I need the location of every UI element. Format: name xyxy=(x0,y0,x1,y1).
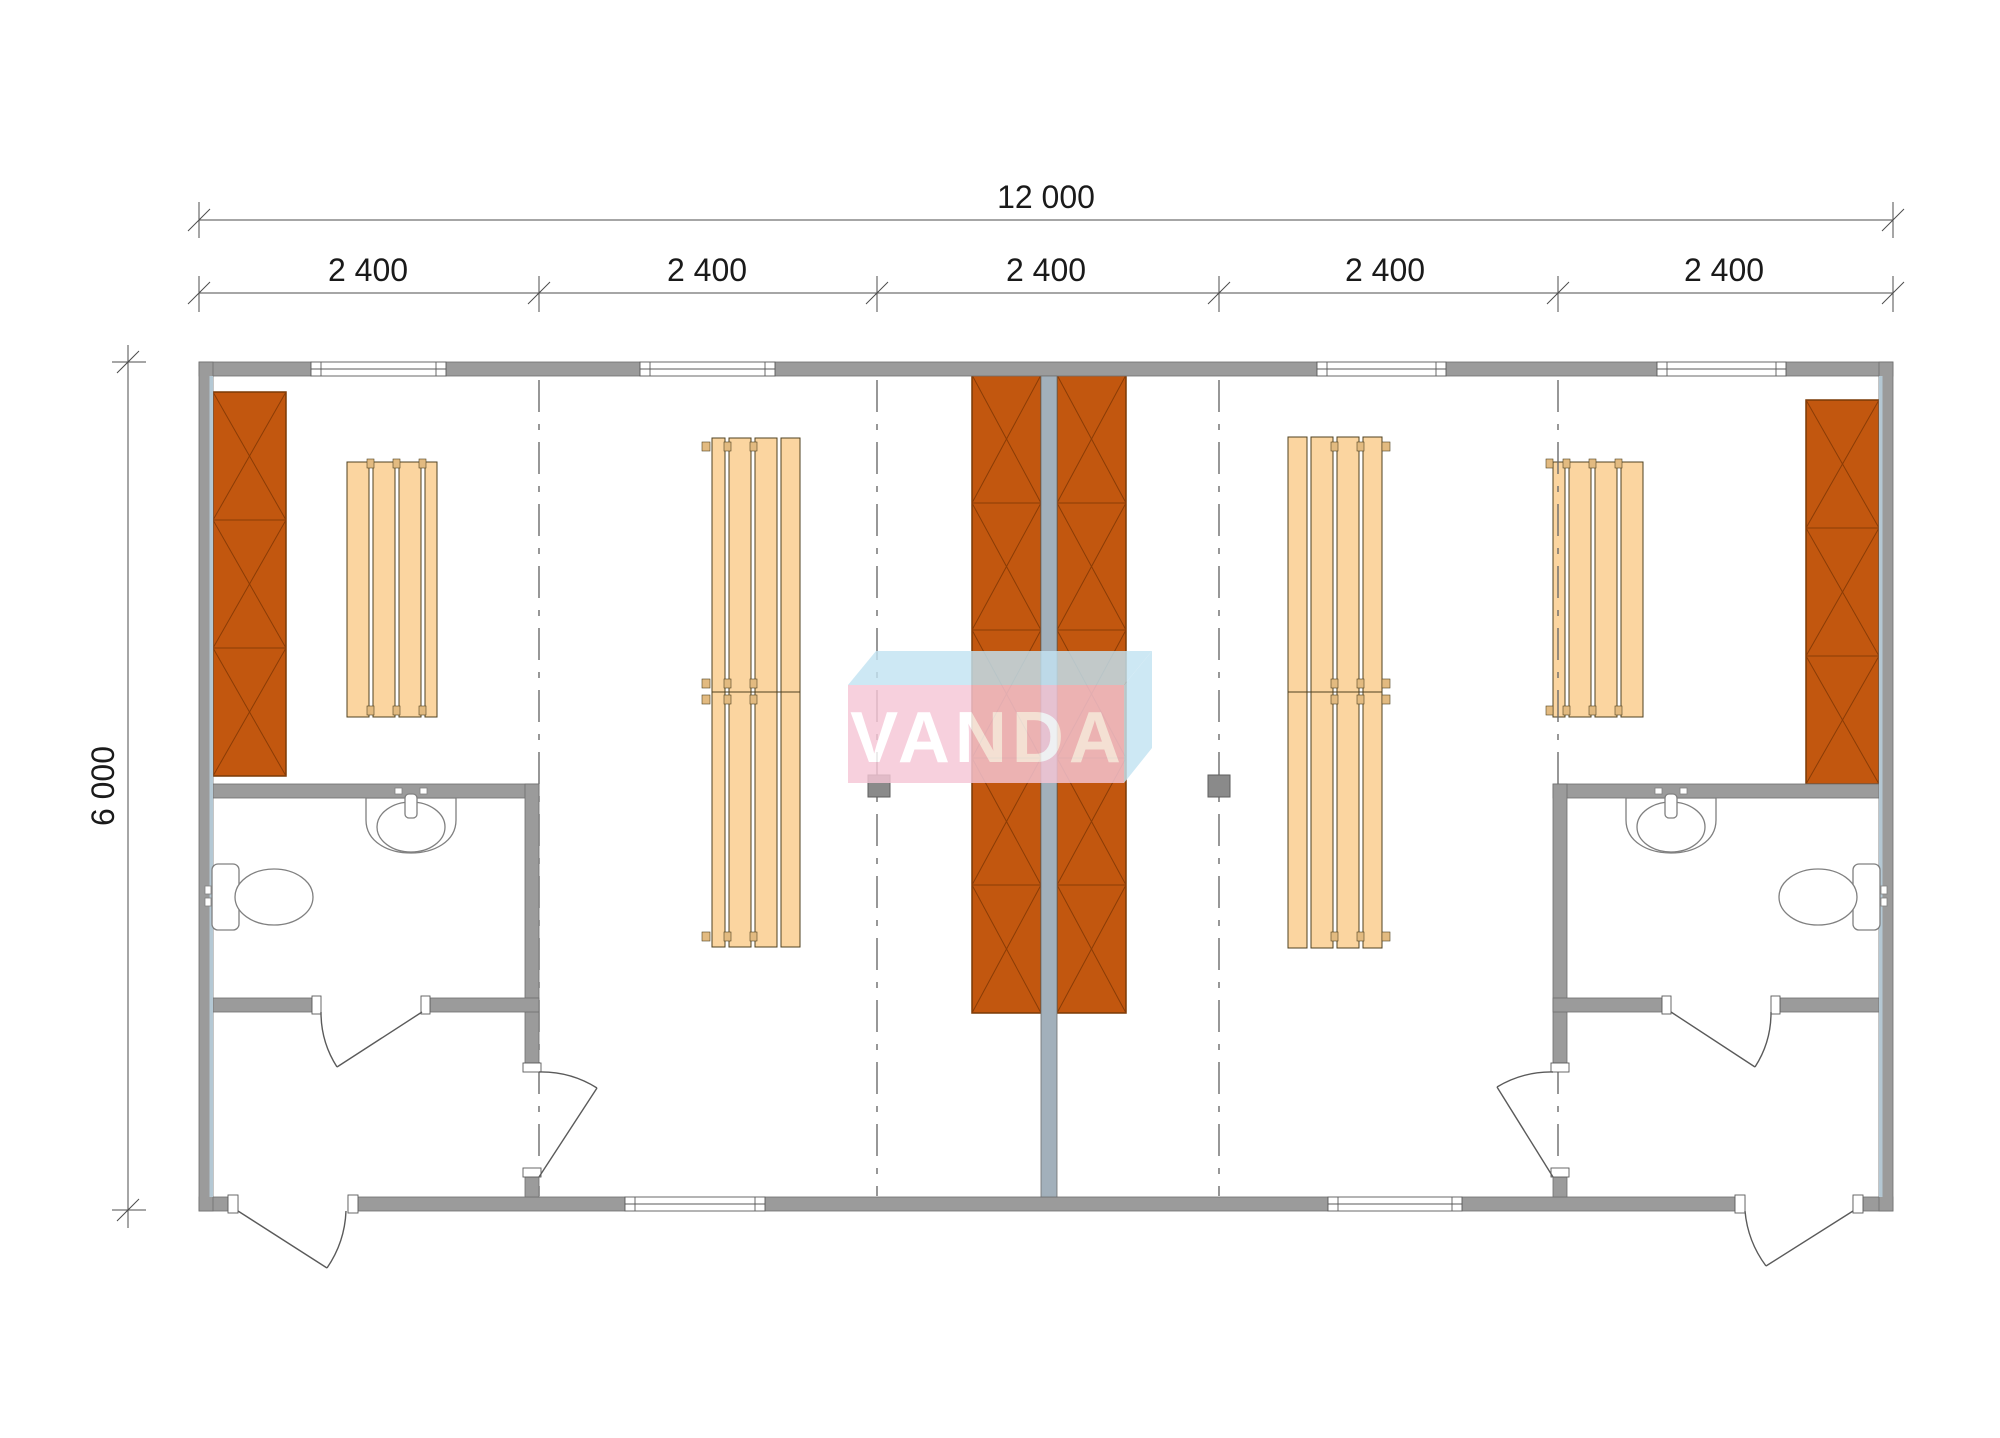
dimension-module-label: 2 400 xyxy=(1006,252,1086,288)
wall-bathroom-left-side xyxy=(525,1177,539,1197)
door-room-left xyxy=(539,1072,597,1177)
dimension-height-label: 6 000 xyxy=(85,746,121,826)
wall-bathroom-right-side xyxy=(1553,784,1567,1063)
wall-bathroom-left-top xyxy=(213,784,539,798)
watermark-top-face xyxy=(848,651,1152,685)
window-top-2 xyxy=(640,362,775,376)
wall-bathroom-left-side xyxy=(525,784,539,1063)
post-2 xyxy=(1208,775,1230,797)
bench-4 xyxy=(1546,459,1643,717)
door-exterior-left xyxy=(238,1211,346,1268)
liner-right-wall xyxy=(1879,376,1883,1197)
door-bathroom-left xyxy=(321,1012,422,1067)
wall-bottom xyxy=(1462,1197,1745,1211)
wall-top xyxy=(775,362,1317,376)
door-room-right xyxy=(1497,1072,1553,1177)
wall-bathroom-right-top xyxy=(1553,784,1879,798)
wall-bathroom-right-bottom xyxy=(1553,998,1662,1012)
watermark-logo-text: VANDA xyxy=(850,698,1126,778)
bench-3-double xyxy=(1288,437,1390,948)
floor-plan-drawing: 12 000 2 400 2 400 2 400 2 400 2 400 6 0… xyxy=(0,0,2000,1438)
wall-top xyxy=(199,362,311,376)
dimension-module-label: 2 400 xyxy=(1684,252,1764,288)
bench-1 xyxy=(347,459,437,717)
toilet-right xyxy=(1779,864,1887,930)
wall-bathroom-left-bottom xyxy=(430,998,539,1012)
window-bottom-2 xyxy=(1328,1197,1462,1211)
wall-top xyxy=(1786,362,1893,376)
sink-right xyxy=(1626,788,1716,853)
dimension-module-label: 2 400 xyxy=(1345,252,1425,288)
window-top-3 xyxy=(1317,362,1446,376)
wall-top xyxy=(446,362,640,376)
sink-left xyxy=(366,788,456,853)
door-bathroom-right xyxy=(1671,1012,1771,1067)
wall-bathroom-right-bottom xyxy=(1780,998,1879,1012)
window-bottom-1 xyxy=(625,1197,765,1211)
wall-bathroom-left-bottom xyxy=(213,998,312,1012)
door-exterior-right xyxy=(1745,1211,1853,1266)
window-top-4 xyxy=(1657,362,1786,376)
wall-center-partition xyxy=(1041,376,1057,1197)
toilet-left xyxy=(205,864,313,930)
floor-plan-page: 12 000 2 400 2 400 2 400 2 400 2 400 6 0… xyxy=(0,0,2000,1438)
bench-2-double xyxy=(702,438,800,947)
wall-bottom xyxy=(348,1197,625,1211)
wall-top xyxy=(1446,362,1657,376)
dimension-module-label: 2 400 xyxy=(667,252,747,288)
locker-right xyxy=(1806,400,1879,784)
locker-left xyxy=(213,392,286,776)
wall-bottom xyxy=(765,1197,1328,1211)
window-top-1 xyxy=(311,362,446,376)
liner-left-wall xyxy=(210,376,214,1197)
dimension-total-width-label: 12 000 xyxy=(997,179,1095,215)
wall-bathroom-right-side xyxy=(1553,1177,1567,1197)
dimension-module-label: 2 400 xyxy=(328,252,408,288)
vanda-watermark: VANDA xyxy=(848,651,1152,783)
